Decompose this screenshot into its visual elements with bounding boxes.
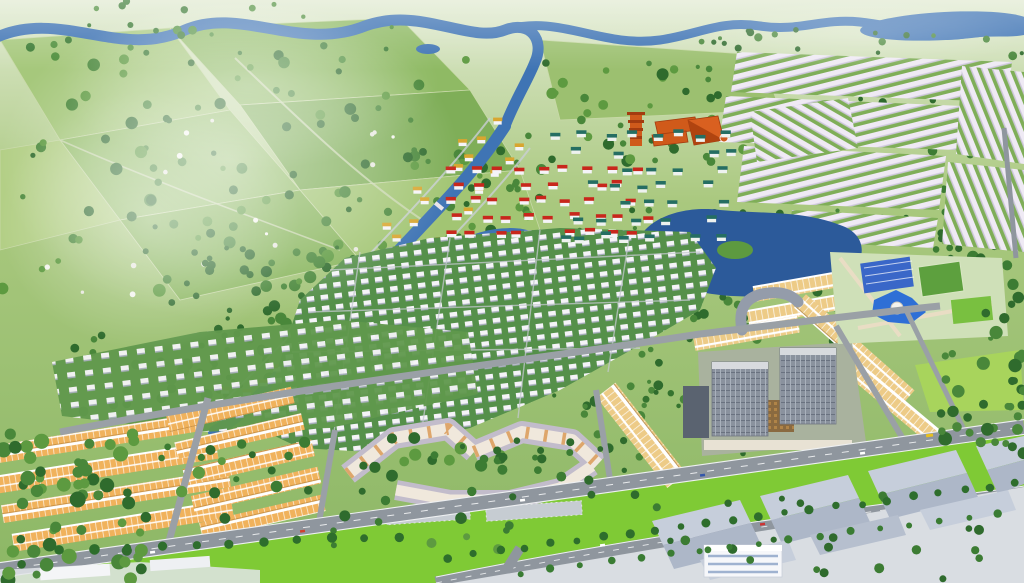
tree — [566, 438, 574, 446]
tree — [386, 470, 398, 482]
tree — [699, 309, 709, 319]
tree — [24, 452, 36, 464]
tree — [653, 503, 661, 511]
tree — [999, 313, 1009, 323]
tree — [618, 123, 624, 129]
tree — [1008, 377, 1016, 385]
tree — [40, 558, 54, 572]
palm-tree — [574, 538, 581, 545]
palm-tree — [756, 541, 762, 547]
tree — [966, 525, 973, 532]
palm-tree — [651, 527, 659, 535]
tree — [509, 493, 516, 500]
office-tower — [712, 362, 768, 436]
palm-tree — [729, 516, 737, 524]
villa-roof — [607, 166, 617, 170]
tree — [974, 525, 984, 535]
villa-roof — [673, 168, 683, 172]
villa-roof — [656, 181, 666, 185]
villa-roof — [501, 216, 511, 220]
tree — [5, 429, 16, 440]
villa-roof — [614, 152, 624, 156]
palm-tree — [443, 554, 452, 563]
tree — [136, 564, 147, 575]
villa-roof — [487, 198, 497, 202]
palm-tree — [54, 545, 64, 555]
villa-roof — [646, 168, 656, 172]
villa-roof — [548, 182, 558, 186]
industrial-office-roof — [704, 545, 782, 551]
tree — [496, 146, 505, 155]
palm-tree — [701, 519, 710, 528]
tree — [622, 468, 627, 473]
tree — [127, 429, 138, 440]
palm-tree — [327, 533, 337, 543]
villa-roof — [610, 184, 620, 188]
tree — [70, 492, 86, 508]
villa-roof — [667, 200, 677, 204]
tree — [468, 223, 475, 230]
tree — [682, 88, 689, 95]
lake-island — [717, 241, 753, 259]
palm-tree — [577, 562, 583, 568]
tree — [933, 246, 940, 253]
villa-roof — [573, 218, 583, 222]
tree — [537, 447, 544, 454]
tree — [50, 522, 61, 533]
tree — [714, 91, 722, 99]
tree — [820, 568, 829, 577]
tree — [552, 393, 556, 397]
villa-roof — [514, 168, 524, 172]
tree — [975, 554, 983, 562]
tree — [835, 209, 839, 213]
villa-roof — [690, 234, 700, 238]
tree — [1005, 403, 1012, 410]
tree — [947, 406, 958, 417]
tree — [627, 382, 635, 390]
palm-tree — [784, 535, 792, 543]
villa-roof — [496, 231, 506, 235]
villa-roof — [515, 143, 524, 147]
tree — [1007, 279, 1018, 290]
tree — [21, 471, 36, 486]
villa-roof — [707, 215, 717, 219]
tree — [20, 440, 33, 453]
office-tower-dark — [683, 386, 709, 438]
tree — [387, 433, 397, 443]
tree — [31, 485, 43, 497]
tree — [537, 454, 546, 463]
aerial-masterplan-render — [0, 0, 1024, 583]
tree — [467, 487, 476, 496]
villa-roof — [570, 212, 580, 216]
tree — [493, 447, 501, 455]
villa-roof — [695, 135, 705, 139]
villa-roof — [661, 218, 671, 222]
tree — [79, 478, 89, 488]
tree — [620, 437, 627, 444]
palm-tree — [962, 486, 970, 494]
tree — [2, 567, 15, 580]
tree — [629, 207, 635, 213]
tree — [480, 455, 489, 464]
tree — [284, 452, 293, 461]
tree — [17, 498, 28, 509]
tree — [668, 390, 674, 396]
tree — [455, 512, 467, 524]
tree — [34, 434, 49, 449]
tree — [548, 156, 556, 164]
villa-roof — [560, 199, 570, 203]
villa-roof — [597, 184, 607, 188]
tree — [990, 326, 1003, 339]
tree — [912, 545, 921, 554]
tree — [681, 536, 691, 546]
villa-roof — [620, 201, 630, 205]
tree — [647, 103, 652, 108]
palm-tree — [599, 532, 608, 541]
palm-tree — [909, 491, 918, 500]
villa-roof — [582, 166, 592, 170]
tree — [946, 245, 953, 252]
tree — [119, 556, 130, 567]
tree — [979, 400, 988, 409]
villa-roof — [633, 168, 643, 172]
tree — [1008, 359, 1021, 372]
villa-roof — [492, 167, 502, 171]
tree — [497, 465, 507, 475]
aerial-render-canvas — [0, 0, 1024, 583]
palm-tree — [877, 526, 883, 532]
villa-roof — [673, 129, 683, 133]
tree — [17, 535, 26, 544]
tree — [577, 116, 586, 125]
villa-roof — [721, 130, 731, 134]
tree — [949, 350, 956, 357]
tree — [797, 499, 805, 507]
sports-courts — [918, 261, 964, 297]
tree — [643, 396, 650, 403]
palm-tree — [804, 505, 813, 514]
tree — [639, 351, 646, 358]
tree — [409, 449, 421, 461]
tree — [705, 546, 712, 553]
palm-tree — [817, 533, 824, 540]
tree — [218, 457, 226, 465]
tree — [1013, 292, 1024, 304]
tree — [477, 173, 483, 179]
tree — [100, 478, 114, 492]
palm-tree — [832, 502, 839, 509]
villa-roof — [716, 234, 726, 238]
tree — [1008, 442, 1017, 451]
tree — [176, 486, 187, 497]
tree — [7, 545, 19, 557]
villa-roof — [472, 166, 482, 170]
villa-roof — [588, 180, 598, 184]
palm-tree — [608, 557, 616, 565]
palm-tree — [124, 544, 131, 551]
palm-tree — [667, 550, 674, 557]
tree — [198, 454, 205, 461]
villa-roof — [726, 149, 736, 153]
villa-roof — [511, 231, 521, 235]
villa-roof — [519, 198, 529, 202]
palm-tree — [883, 497, 891, 505]
tree — [824, 543, 833, 552]
tree — [556, 472, 566, 482]
palm-tree — [678, 523, 685, 530]
palm-tree — [546, 539, 554, 547]
tree — [942, 375, 951, 384]
tree — [9, 441, 22, 454]
tree — [652, 158, 658, 164]
tree — [431, 451, 439, 459]
tree — [460, 444, 465, 449]
tree — [588, 491, 596, 499]
tree — [647, 380, 651, 384]
tree — [1012, 424, 1023, 435]
palm-tree — [259, 537, 268, 546]
tree — [705, 77, 711, 83]
tree — [499, 453, 508, 462]
tree — [463, 533, 470, 540]
tree — [598, 100, 608, 110]
tree — [17, 560, 26, 569]
sky-fade — [0, 0, 1024, 70]
villa-roof — [521, 183, 531, 187]
tree — [981, 423, 994, 436]
tree — [123, 488, 132, 497]
villa-roof — [607, 134, 617, 138]
villa-roof — [631, 219, 641, 223]
amenity-center — [830, 252, 1008, 344]
tree — [553, 90, 559, 96]
villa-roof — [653, 134, 663, 138]
villa-roof — [622, 168, 632, 172]
tree — [580, 94, 589, 103]
villa-roof — [619, 236, 629, 240]
tree — [237, 439, 246, 448]
tree — [105, 439, 116, 450]
villa-roof — [584, 197, 594, 201]
tree — [369, 462, 380, 473]
tree — [676, 404, 681, 409]
tree — [966, 429, 974, 437]
tree — [707, 157, 716, 166]
palm-tree — [546, 564, 554, 572]
palm-tree — [847, 527, 855, 535]
palm-tree — [986, 484, 994, 492]
villa-roof — [550, 133, 560, 137]
tree — [1002, 260, 1012, 270]
tree — [532, 455, 538, 461]
tree — [84, 439, 94, 449]
villa-roof — [643, 216, 653, 220]
tree — [271, 481, 283, 493]
tree — [971, 546, 979, 554]
palm-tree — [697, 548, 703, 554]
tree — [813, 566, 820, 573]
tree — [381, 496, 390, 505]
villa-roof — [719, 200, 729, 204]
tree — [874, 563, 884, 573]
tree — [33, 571, 41, 579]
tree — [669, 144, 679, 154]
tree — [667, 538, 673, 544]
pagoda-tier — [627, 112, 645, 115]
villa-roof — [493, 118, 502, 122]
tree — [858, 97, 863, 102]
villa-roof — [709, 150, 719, 154]
palm-tree — [518, 571, 524, 577]
tree — [164, 444, 171, 451]
palm-tree — [781, 509, 787, 515]
villa-roof — [612, 180, 622, 184]
tree — [690, 315, 697, 322]
villa-roof — [543, 216, 553, 220]
tree — [625, 154, 635, 164]
tree — [122, 496, 135, 509]
tree — [583, 109, 591, 117]
tree — [408, 432, 420, 444]
tree — [27, 545, 40, 558]
villa-roof — [627, 231, 637, 235]
villa-roof — [585, 228, 595, 232]
villa-roof — [557, 165, 567, 169]
tree — [525, 133, 532, 140]
villa-roof — [483, 216, 493, 220]
tree — [631, 490, 640, 499]
tree — [209, 487, 220, 498]
tree — [653, 380, 663, 390]
office-tower — [780, 348, 836, 424]
tree — [937, 409, 945, 417]
tree — [952, 422, 962, 432]
tree — [444, 455, 455, 466]
villa-roof — [565, 229, 575, 233]
tree — [558, 78, 568, 88]
tree — [1008, 301, 1015, 308]
tree — [706, 94, 715, 103]
villa-roof — [645, 235, 655, 239]
tree — [829, 533, 838, 542]
palm-tree — [293, 536, 301, 544]
tree — [654, 390, 659, 395]
tree — [648, 347, 654, 353]
tree — [505, 521, 514, 530]
palm-tree — [360, 534, 368, 542]
palm-tree — [193, 541, 201, 549]
palm-tree — [638, 554, 646, 562]
tree — [375, 518, 383, 526]
palm-tree — [497, 546, 505, 554]
tree — [76, 525, 86, 535]
tree — [746, 556, 754, 564]
tree — [206, 445, 216, 455]
tree — [581, 410, 588, 417]
tree — [534, 466, 542, 474]
tree — [399, 457, 409, 467]
tree — [299, 437, 310, 448]
tree — [331, 542, 337, 548]
villa-roof — [576, 130, 586, 134]
tree — [952, 385, 965, 398]
palm-tree — [859, 501, 866, 508]
palm-tree — [158, 542, 167, 551]
tree — [93, 490, 103, 500]
tree — [359, 488, 366, 495]
palm-tree — [906, 523, 912, 529]
tree — [597, 446, 603, 452]
villa-roof — [471, 196, 481, 200]
villa-roof — [717, 166, 727, 170]
tree — [566, 449, 573, 456]
palm-tree — [224, 540, 233, 549]
tree — [268, 467, 276, 475]
palm-tree — [994, 509, 1002, 517]
tree — [991, 438, 999, 446]
villa-roof — [561, 235, 571, 239]
tree — [35, 466, 46, 477]
villa-roof — [596, 214, 606, 218]
tree — [976, 437, 986, 447]
palm-tree — [470, 550, 477, 557]
tree — [642, 403, 647, 408]
villa-roof — [464, 208, 473, 212]
tree — [118, 518, 127, 527]
tree — [942, 352, 949, 359]
tree — [779, 496, 785, 502]
palm-tree — [1011, 479, 1019, 487]
villa-roof — [574, 237, 584, 241]
tree — [249, 451, 256, 458]
tree — [938, 427, 946, 435]
tree — [220, 513, 231, 524]
villa-roof — [627, 130, 637, 134]
tree — [62, 549, 77, 564]
tree — [982, 309, 991, 318]
tree — [339, 510, 350, 521]
tree — [771, 537, 777, 543]
palm-tree — [626, 529, 635, 538]
tree — [514, 186, 520, 192]
tree — [427, 538, 437, 548]
tree — [514, 437, 521, 444]
tree — [136, 528, 144, 536]
palm-tree — [754, 512, 763, 521]
palm-tree — [726, 544, 732, 550]
tree — [80, 464, 93, 477]
tree — [57, 478, 71, 492]
office-tower-roof — [712, 362, 768, 369]
tree — [233, 476, 239, 482]
tree — [135, 544, 148, 557]
tree — [113, 446, 128, 461]
tree — [304, 486, 313, 495]
villa-roof — [571, 147, 581, 151]
villa-roof — [612, 214, 622, 218]
tree — [657, 68, 669, 80]
villa-roof — [464, 231, 474, 235]
villa-roof — [596, 219, 606, 223]
villa-roof — [539, 167, 549, 171]
tree — [193, 467, 205, 479]
tree — [158, 455, 165, 462]
palm-tree — [395, 533, 404, 542]
tree — [513, 179, 520, 186]
